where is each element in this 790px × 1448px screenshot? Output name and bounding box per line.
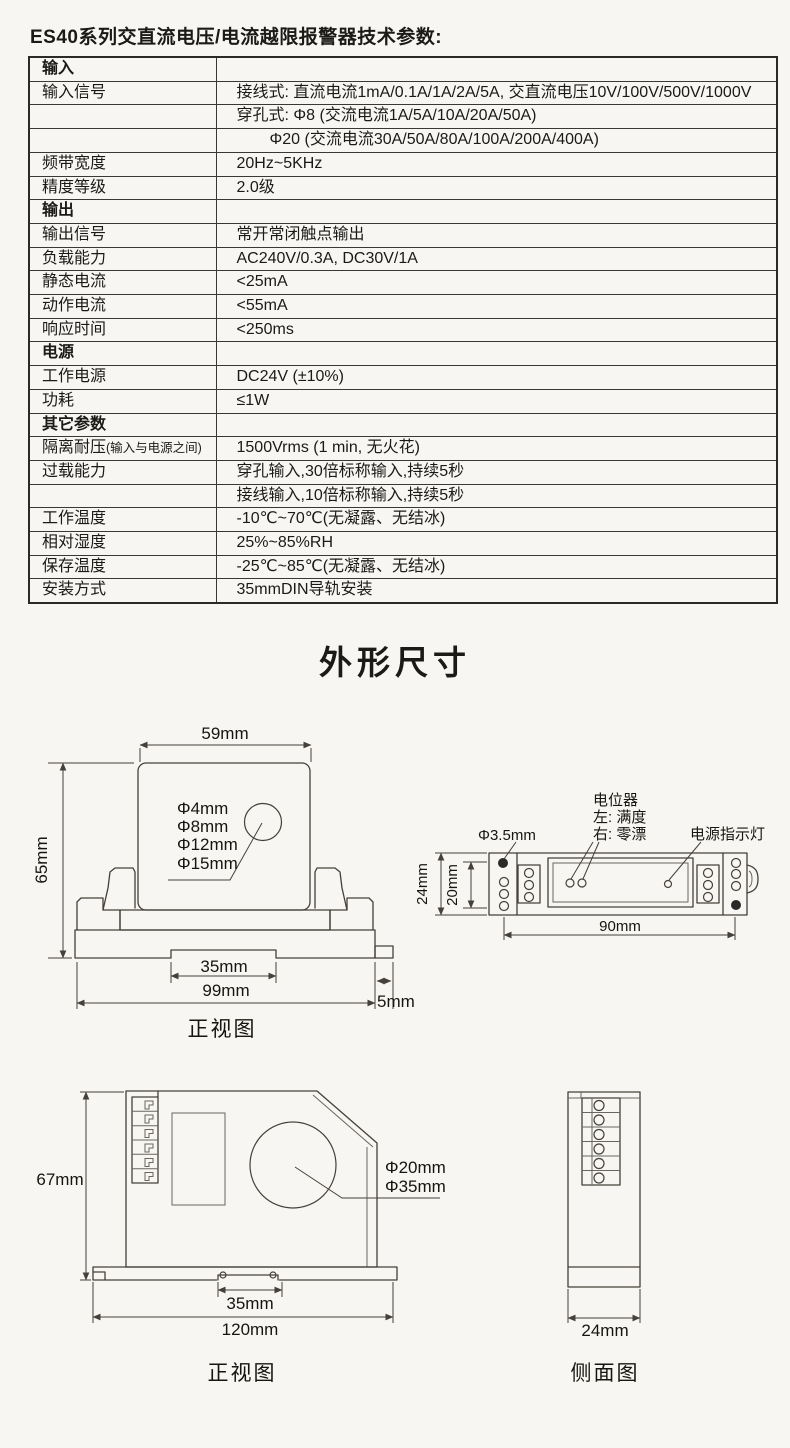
dim-label-90mm: 90mm <box>599 918 641 935</box>
dimension-35mm: 35mm <box>171 957 276 983</box>
spec-label-cell: 输出信号 <box>29 223 216 247</box>
table-row: 精度等级2.0级 <box>29 176 777 200</box>
spec-value-cell: 接线输入,10倍标称输入,持续5秒 <box>216 484 777 508</box>
side-view-caption: 侧面图 <box>571 1362 640 1385</box>
label-window <box>172 1113 225 1205</box>
spec-value-cell: 穿孔式: Φ8 (交流电流1A/5A/10A/20A/50A) <box>216 105 777 129</box>
table-row: 穿孔式: Φ8 (交流电流1A/5A/10A/20A/50A) <box>29 105 777 129</box>
spec-label-cell: 静态电流 <box>29 271 216 295</box>
dimension-65mm: 65mm <box>32 763 134 958</box>
spec-label-cell <box>29 484 216 508</box>
spec-value-cell: AC240V/0.3A, DC30V/1A <box>216 247 777 271</box>
dim-label-phi3-5mm: Φ3.5mm <box>478 827 536 844</box>
spec-label-cell: 频带宽度 <box>29 152 216 176</box>
table-row: 输入 <box>29 57 777 81</box>
dimension-35mm: 35mm <box>218 1282 282 1313</box>
table-row: 动作电流<55mA <box>29 295 777 319</box>
terminal-block <box>132 1091 158 1183</box>
power-led <box>665 842 702 888</box>
spec-label-cell <box>29 129 216 153</box>
spec-value-cell: <55mA <box>216 295 777 319</box>
aperture-size-labels: Φ4mm Φ8mm Φ12mm Φ15mm <box>177 799 238 873</box>
top-view-drawing: Φ3.5mm 电位器 左: 满度 右: 零漂 电源指示灯 24mm 20mm <box>415 783 780 945</box>
label-potentiometer: 电位器 <box>593 792 638 809</box>
spec-label-cell: 工作温度 <box>29 508 216 532</box>
spec-value-cell: ≤1W <box>216 389 777 413</box>
spec-value-cell: Φ20 (交流电流30A/50A/80A/100A/200A/400A) <box>216 129 777 153</box>
dim-label-phi4: Φ4mm <box>177 799 228 818</box>
dim-label-59mm: 59mm <box>201 724 248 743</box>
spec-label-cell: 过载能力 <box>29 460 216 484</box>
potentiometer-labels: 电位器 左: 满度 右: 零漂 <box>593 792 646 843</box>
dimension-20mm: 20mm <box>444 862 487 908</box>
spec-label-cell: 输入信号 <box>29 81 216 105</box>
spec-value-cell: 常开常闭触点输出 <box>216 223 777 247</box>
table-row: 输入信号接线式: 直流电流1mA/0.1A/1A/2A/5A, 交直流电压10V… <box>29 81 777 105</box>
front-view-small-caption: 正视图 <box>188 1018 257 1041</box>
dim-label-67mm: 67mm <box>36 1170 83 1189</box>
datasheet-page: ES40系列交直流电压/电流越限报警器技术参数: 输入 输入信号接线式: 直流电… <box>0 0 790 1448</box>
table-row: 工作电源DC24V (±10%) <box>29 366 777 390</box>
dim-label-phi20: Φ20mm <box>385 1158 446 1177</box>
spec-label-cell: 输出 <box>29 200 216 224</box>
dimension-59mm: 59mm <box>140 724 311 762</box>
spec-value-cell: 20Hz~5KHz <box>216 152 777 176</box>
dim-label-24mm: 24mm <box>414 863 431 905</box>
spec-label-cell: 保存温度 <box>29 555 216 579</box>
front-view-large-drawing: Φ20mm Φ35mm 67mm 35mm 120mm 正视图 <box>40 1085 470 1397</box>
spec-label-cell: 负载能力 <box>29 247 216 271</box>
spec-value-cell: 25%~85%RH <box>216 532 777 556</box>
spec-value-cell <box>216 413 777 437</box>
dim-label-35mm: 35mm <box>226 1294 273 1313</box>
spec-value-cell: 1500Vrms (1 min, 无火花) <box>216 437 777 461</box>
mounting-hole-callout: Φ3.5mm <box>478 827 536 859</box>
spec-value-cell: -25℃~85℃(无凝露、无结冰) <box>216 555 777 579</box>
spec-label-cell: 功耗 <box>29 389 216 413</box>
dim-label-65mm: 65mm <box>32 836 51 883</box>
table-row: 其它参数 <box>29 413 777 437</box>
spec-label-cell: 其它参数 <box>29 413 216 437</box>
dim-label-24mm: 24mm <box>581 1321 628 1340</box>
spec-value-cell <box>216 342 777 366</box>
dim-label-phi35: Φ35mm <box>385 1177 446 1196</box>
table-row: 静态电流<25mA <box>29 271 777 295</box>
spec-value-cell: 穿孔输入,30倍标称输入,持续5秒 <box>216 460 777 484</box>
table-row: 工作温度-10℃~70℃(无凝露、无结冰) <box>29 508 777 532</box>
dimension-67mm: 67mm <box>36 1092 124 1280</box>
aperture-size-labels: Φ20mm Φ35mm <box>385 1158 446 1196</box>
spec-value-cell: 35mmDIN导轨安装 <box>216 579 777 603</box>
table-row: 相对湿度25%~85%RH <box>29 532 777 556</box>
dim-label-phi15: Φ15mm <box>177 854 238 873</box>
table-row: 功耗≤1W <box>29 389 777 413</box>
spec-label-cell: 电源 <box>29 342 216 366</box>
spec-value-cell: <250ms <box>216 318 777 342</box>
table-row: 电源 <box>29 342 777 366</box>
table-row: 输出信号常开常闭触点输出 <box>29 223 777 247</box>
spec-label-cell: 工作电源 <box>29 366 216 390</box>
table-row: 响应时间<250ms <box>29 318 777 342</box>
side-view-drawing: 24mm 侧面图 <box>535 1085 695 1397</box>
spec-label-cell: 相对湿度 <box>29 532 216 556</box>
terminal-block <box>582 1098 620 1185</box>
spec-value-cell <box>216 200 777 224</box>
dim-label-5mm: 5mm <box>377 992 415 1011</box>
label-pot-right-zerodrift: 右: 零漂 <box>593 826 646 843</box>
section-heading-outline-dimensions: 外形尺寸 <box>0 636 790 684</box>
table-row: 频带宽度20Hz~5KHz <box>29 152 777 176</box>
spec-label-cell <box>29 105 216 129</box>
dim-label-phi8: Φ8mm <box>177 817 228 836</box>
spec-value-cell: 2.0级 <box>216 176 777 200</box>
dim-label-35mm: 35mm <box>200 957 247 976</box>
table-row: 过载能力穿孔输入,30倍标称输入,持续5秒 <box>29 460 777 484</box>
dim-label-120mm: 120mm <box>222 1320 279 1339</box>
table-row: 保存温度-25℃~85℃(无凝露、无结冰) <box>29 555 777 579</box>
table-row: 负载能力AC240V/0.3A, DC30V/1A <box>29 247 777 271</box>
dim-label-phi12: Φ12mm <box>177 835 238 854</box>
spec-label-cell: 精度等级 <box>29 176 216 200</box>
spec-value-cell <box>216 57 777 81</box>
spec-value-cell: -10℃~70℃(无凝露、无结冰) <box>216 508 777 532</box>
spec-label-cell: 输入 <box>29 57 216 81</box>
table-row: 安装方式35mmDIN导轨安装 <box>29 579 777 603</box>
front-view-small-drawing: Φ4mm Φ8mm Φ12mm Φ15mm 59mm 65mm <box>40 725 460 1050</box>
label-pot-left-fullscale: 左: 满度 <box>593 809 646 826</box>
potentiometers <box>566 842 599 887</box>
dim-label-99mm: 99mm <box>202 981 249 1000</box>
table-row: 接线输入,10倍标称输入,持续5秒 <box>29 484 777 508</box>
spec-label-cell: 响应时间 <box>29 318 216 342</box>
table-row: Φ20 (交流电流30A/50A/80A/100A/200A/400A) <box>29 129 777 153</box>
spec-value-cell: DC24V (±10%) <box>216 366 777 390</box>
spec-label-cell: 动作电流 <box>29 295 216 319</box>
dim-label-20mm: 20mm <box>444 864 461 906</box>
spec-label-cell: 隔离耐压(输入与电源之间) <box>29 437 216 461</box>
dimension-24mm: 24mm <box>568 1289 640 1340</box>
dimension-90mm: 90mm <box>504 917 735 940</box>
dimension-5mm: 5mm <box>375 962 415 1011</box>
front-view-large-caption: 正视图 <box>208 1362 277 1385</box>
label-power-indicator: 电源指示灯 <box>690 826 765 843</box>
table-row: 输出 <box>29 200 777 224</box>
spec-label-cell: 安装方式 <box>29 579 216 603</box>
device-outline <box>93 1091 397 1281</box>
spec-value-cell: <25mA <box>216 271 777 295</box>
spec-value-cell: 接线式: 直流电流1mA/0.1A/1A/2A/5A, 交直流电压10V/100… <box>216 81 777 105</box>
table-row: 隔离耐压(输入与电源之间)1500Vrms (1 min, 无火花) <box>29 437 777 461</box>
spec-table: 输入 输入信号接线式: 直流电流1mA/0.1A/1A/2A/5A, 交直流电压… <box>28 56 778 604</box>
page-title: ES40系列交直流电压/电流越限报警器技术参数: <box>30 22 442 49</box>
device-outline <box>489 853 758 915</box>
